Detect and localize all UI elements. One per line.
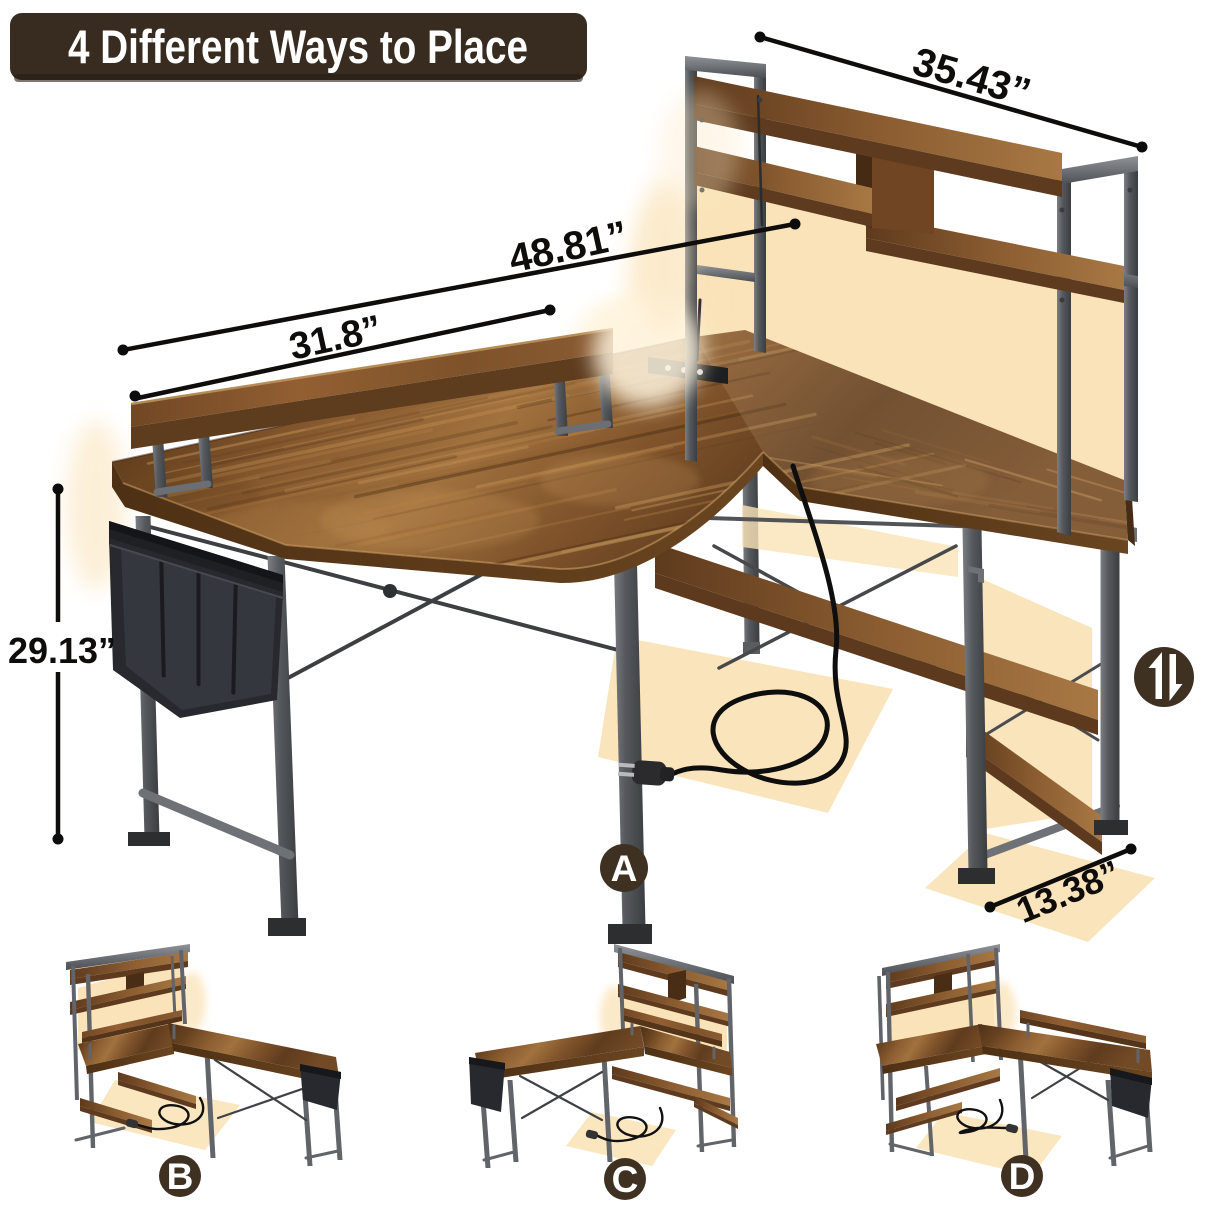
svg-text:C: C — [612, 1159, 639, 1200]
svg-text:A: A — [611, 848, 638, 889]
svg-text:29.13”: 29.13” — [8, 630, 116, 671]
svg-text:B: B — [167, 1156, 194, 1197]
svg-text:4 Different Ways to Place: 4 Different Ways to Place — [68, 20, 528, 73]
svg-text:D: D — [1009, 1156, 1036, 1197]
